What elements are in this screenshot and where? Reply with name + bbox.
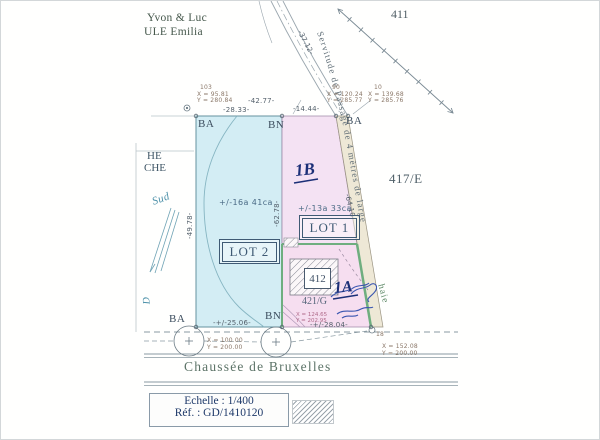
street-name: Chaussée de Bruxelles <box>184 359 331 375</box>
lot1-label: LOT 1 <box>302 218 358 238</box>
measurement-top-lot1: -14.44- <box>293 105 320 113</box>
hedge-hatch-box <box>284 238 298 247</box>
point-sw-y: Y = 200.00 <box>207 344 243 351</box>
marker-bn-bottom: BN <box>265 310 281 322</box>
measurement-top-total: -42.77- <box>248 97 275 105</box>
point-10-y: Y = 285.76 <box>368 97 404 104</box>
south-arrow <box>150 208 179 273</box>
point-90-y: Y = 285.77 <box>327 97 363 104</box>
building-412-label-box: 412 <box>304 268 331 289</box>
marker-ba-bottom: BA <box>169 313 185 325</box>
marker-ba-top-left: BA <box>198 118 214 130</box>
owner-name-line1: Yvon & Luc <box>147 12 207 24</box>
point-se-y: Y = 200.00 <box>382 350 418 357</box>
measurement-left-side: -49.78- <box>186 213 194 240</box>
building-412-label: 412 <box>309 273 326 285</box>
scale-label: Echelle : 1/400 <box>150 395 288 407</box>
owner-name-line2: ULE Emilia <box>144 26 203 38</box>
lot2-label-box: LOT 2 <box>219 239 280 264</box>
reference-label: Réf. : GD/1410120 <box>150 407 288 419</box>
lot1-label-box: LOT 1 <box>299 215 360 240</box>
measurement-lot-divider: -62.78- <box>273 201 281 228</box>
measurement-bottom-lot2: -+/-25.06- <box>213 319 251 327</box>
point-10-id: 10 <box>374 84 382 91</box>
point-bn-y: Y = 202.95 <box>296 318 327 324</box>
parcel-417e-label: 417/E <box>389 171 423 187</box>
cadastral-plan-sheet: Servitude de Passage de 4 mètres de larg… <box>0 0 600 440</box>
point-se-x: X = 152.08 <box>382 343 418 350</box>
point-sw-x: X = 100.00 <box>207 337 243 344</box>
edge-letter: D <box>141 296 153 305</box>
marker-bn-top: BN <box>268 119 284 131</box>
point-103-y: Y = 280.84 <box>197 97 233 104</box>
lot2-label: LOT 2 <box>222 242 278 262</box>
lot1-area-label: +/-13a 33ca <box>298 204 352 213</box>
parcel-421g-label: 421/G <box>302 296 327 307</box>
lot2-area-label: +/-16a 41ca <box>219 198 273 207</box>
measurement-top-lot2: -28.33- <box>223 106 250 114</box>
scale-box: Echelle : 1/400 Réf. : GD/1410120 <box>149 393 289 427</box>
hand-note-1b: 1B <box>294 159 316 181</box>
point-se-id: 18 <box>376 331 384 338</box>
edge-word-2: CHE <box>144 162 166 174</box>
lot2-region <box>196 116 282 327</box>
hatch-legend-swatch <box>292 400 334 424</box>
point-103-id: 103 <box>200 84 212 91</box>
hand-note-1a: 1A <box>333 278 353 298</box>
edge-word-1: HE <box>147 150 162 162</box>
parcel-411-label: 411 <box>391 7 409 22</box>
point-90-id: 90 <box>332 84 340 91</box>
marker-ba-top-right: BA <box>346 115 362 127</box>
